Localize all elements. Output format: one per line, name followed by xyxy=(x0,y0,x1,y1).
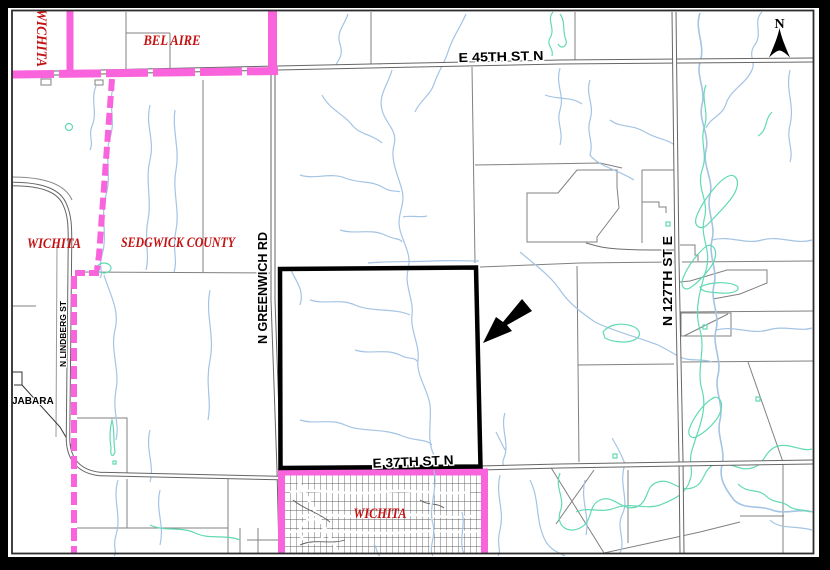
svg-text:N LINDBERG ST: N LINDBERG ST xyxy=(59,301,68,367)
svg-text:WICHITA: WICHITA xyxy=(354,506,407,522)
svg-text:BEL AIRE: BEL AIRE xyxy=(143,33,201,49)
svg-text:E 45TH ST N: E 45TH ST N xyxy=(458,48,543,65)
svg-text:N GREENWICH RD: N GREENWICH RD xyxy=(255,232,270,344)
svg-text:WICHITA: WICHITA xyxy=(33,9,49,67)
svg-text:JABARA: JABARA xyxy=(12,396,54,407)
svg-text:WICHITA: WICHITA xyxy=(27,236,81,252)
svg-text:SEDGWICK COUNTY: SEDGWICK COUNTY xyxy=(121,235,236,251)
svg-text:N 127TH ST E: N 127TH ST E xyxy=(660,236,675,326)
